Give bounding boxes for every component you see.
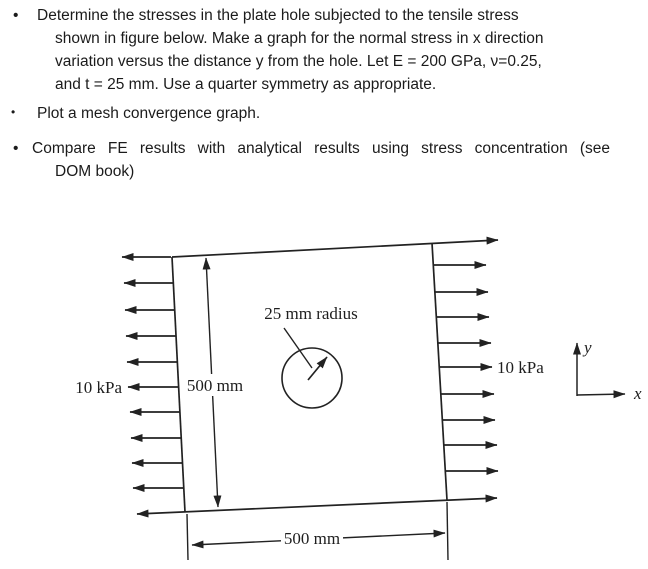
right-load-label: 10 kPa bbox=[497, 358, 544, 377]
y-axis-label: y bbox=[582, 338, 592, 357]
coordinate-axes: y x bbox=[577, 338, 642, 403]
plate-top-edge bbox=[172, 240, 498, 257]
height-dimension: 500 mm bbox=[186, 258, 244, 507]
left-load-arrows bbox=[122, 257, 184, 488]
plate-left-edge bbox=[172, 257, 185, 512]
plate-right-edge bbox=[432, 243, 447, 500]
x-axis-label: x bbox=[633, 384, 642, 403]
height-dimension-label: 500 mm bbox=[187, 376, 243, 395]
left-load-label: 10 kPa bbox=[75, 378, 122, 397]
plate-hole-figure: 25 mm radius 500 mm 500 mm 10 kPa 10 kPa… bbox=[0, 0, 648, 569]
extension-line-right bbox=[447, 502, 448, 560]
plate-bottom-edge bbox=[137, 498, 497, 514]
extension-line-left bbox=[187, 514, 188, 560]
hole-radius-arrow bbox=[308, 357, 327, 380]
hole-radius-label: 25 mm radius bbox=[264, 304, 358, 323]
hole-circle bbox=[282, 348, 342, 408]
worksheet-page: • Determine the stresses in the plate ho… bbox=[0, 0, 648, 569]
x-axis-line bbox=[577, 394, 625, 395]
width-dimension-label: 500 mm bbox=[284, 529, 340, 548]
